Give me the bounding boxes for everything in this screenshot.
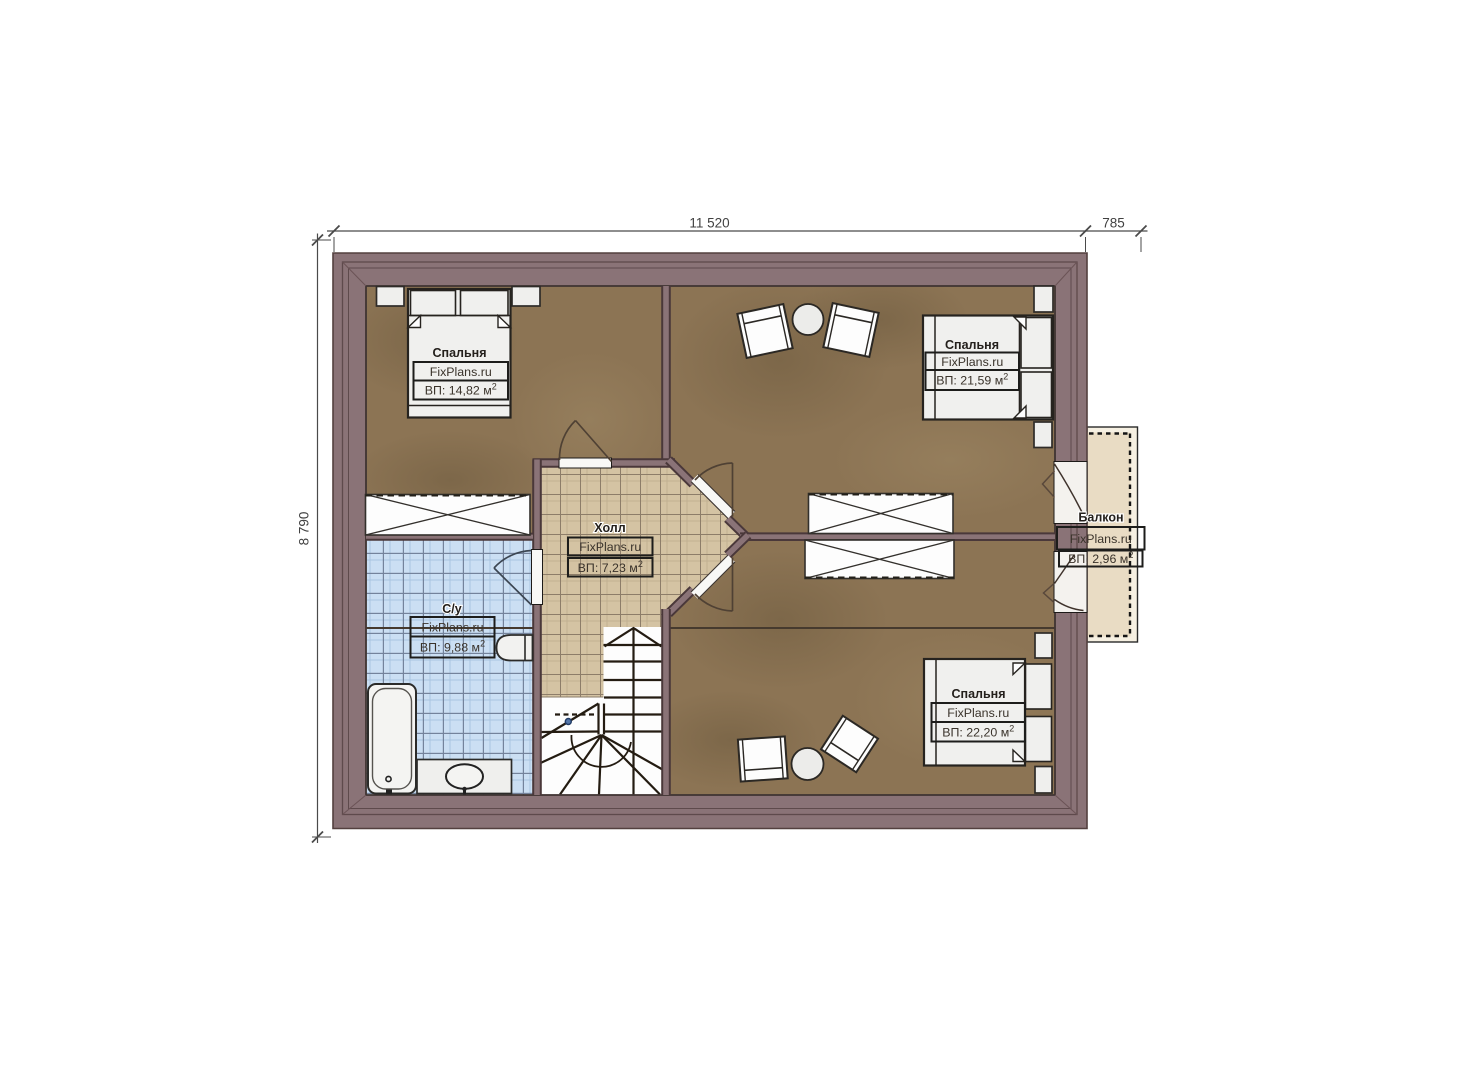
- svg-text:785: 785: [1102, 216, 1125, 231]
- svg-text:ВП: 22,20 м2: ВП: 22,20 м2: [942, 723, 1014, 739]
- svg-text:ВП: 21,59 м2: ВП: 21,59 м2: [936, 372, 1008, 388]
- svg-text:ВП: 9,88 м2: ВП: 9,88 м2: [420, 639, 485, 655]
- svg-text:FixPlans.ru: FixPlans.ru: [430, 365, 492, 379]
- svg-text:ВП: 2,96 м2: ВП: 2,96 м2: [1068, 550, 1133, 566]
- svg-text:ВП: 7,23 м2: ВП: 7,23 м2: [578, 559, 643, 575]
- svg-text:Спальня: Спальня: [945, 338, 999, 352]
- svg-text:FixPlans.ru: FixPlans.ru: [422, 620, 484, 634]
- svg-text:Балкон: Балкон: [1078, 511, 1123, 525]
- svg-text:С/у: С/у: [442, 602, 462, 616]
- svg-text:FixPlans.ru: FixPlans.ru: [579, 540, 641, 554]
- svg-text:Спальня: Спальня: [433, 346, 487, 360]
- svg-text:8 790: 8 790: [297, 512, 312, 546]
- svg-text:11 520: 11 520: [689, 216, 729, 231]
- svg-text:FixPlans.ru: FixPlans.ru: [1070, 532, 1132, 546]
- svg-text:ВП: 14,82 м2: ВП: 14,82 м2: [425, 382, 497, 398]
- svg-text:Спальня: Спальня: [952, 687, 1006, 701]
- svg-text:FixPlans.ru: FixPlans.ru: [947, 706, 1009, 720]
- svg-text:Холл: Холл: [594, 521, 625, 535]
- svg-text:FixPlans.ru: FixPlans.ru: [941, 355, 1003, 369]
